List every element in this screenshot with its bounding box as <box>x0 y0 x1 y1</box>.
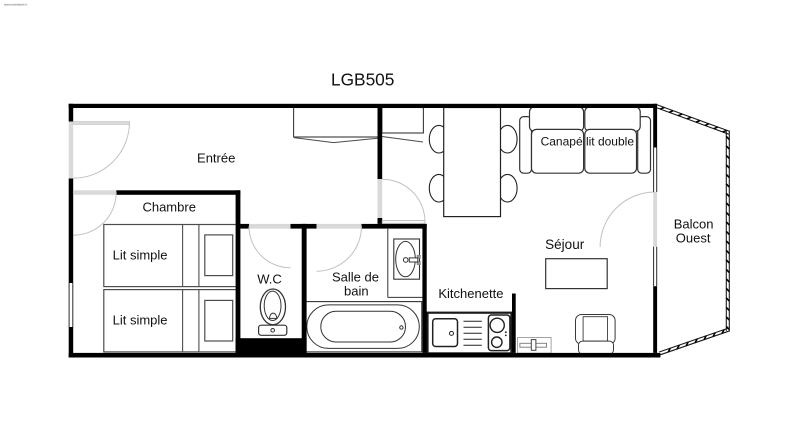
svg-text:Canapé lit double: Canapé lit double <box>541 134 635 148</box>
svg-text:Lit simple: Lit simple <box>113 247 168 262</box>
svg-text:Lit simple: Lit simple <box>113 312 168 327</box>
svg-text:bain: bain <box>344 284 369 299</box>
svg-text:Séjour: Séjour <box>545 237 585 252</box>
svg-text:Salle de: Salle de <box>332 269 379 284</box>
svg-text:Ouest: Ouest <box>676 230 711 245</box>
svg-text:www.archifacile.fr: www.archifacile.fr <box>4 3 27 7</box>
svg-text:LGB505: LGB505 <box>331 70 394 90</box>
svg-text:W.C: W.C <box>257 272 282 287</box>
svg-text:Chambre: Chambre <box>142 200 195 215</box>
svg-text:Kitchenette: Kitchenette <box>438 286 503 301</box>
svg-text:Entrée: Entrée <box>197 150 235 165</box>
